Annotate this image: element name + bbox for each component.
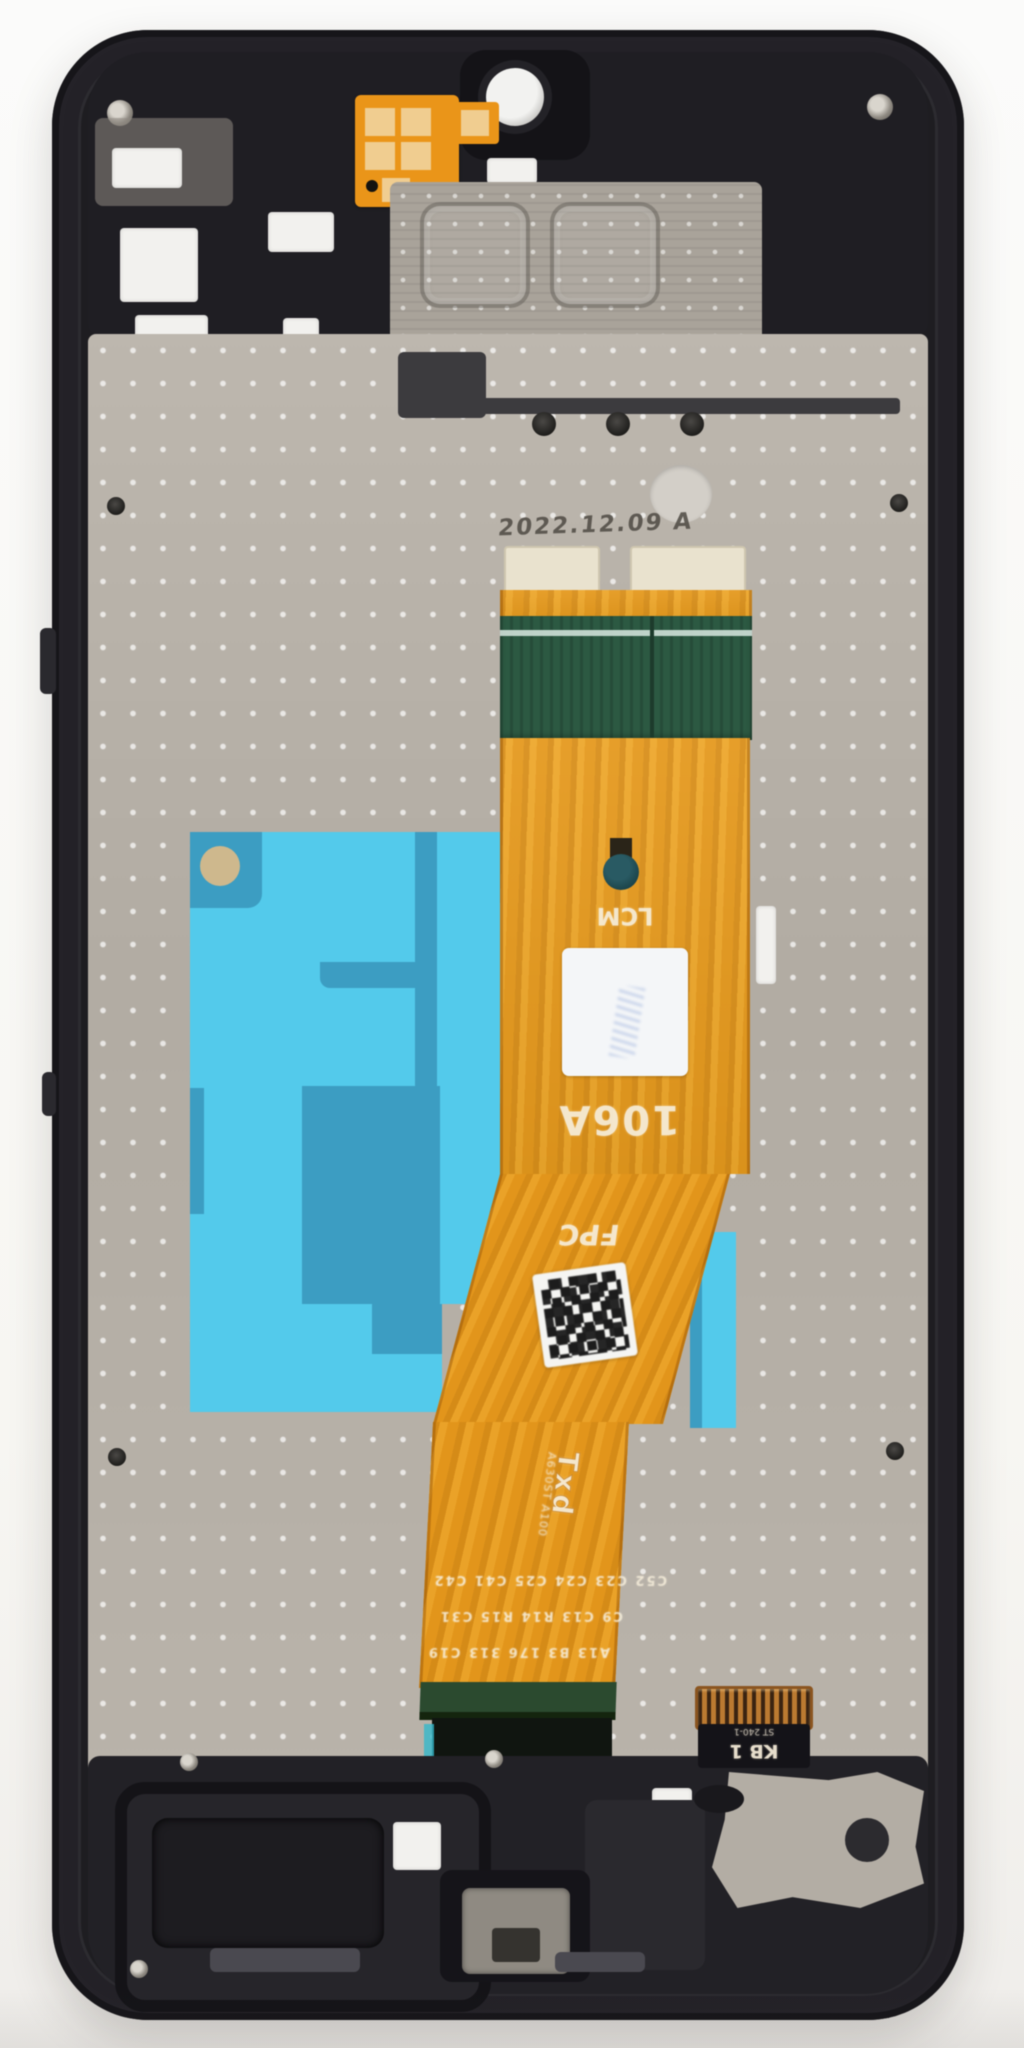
silkscreen-row-2: C9 C13 R14 R15 C31 xyxy=(438,1608,623,1623)
plate-rail xyxy=(460,398,900,414)
bottom-notch-2 xyxy=(555,1952,645,1972)
screw-top-right xyxy=(867,94,893,120)
silkscreen-row-1: C52 C23 C24 C25 C41 C42 xyxy=(432,1572,667,1587)
shield-pocket-right xyxy=(550,202,660,308)
adhesive-teal-blob xyxy=(302,1086,440,1304)
plate-screw-hole-1 xyxy=(107,497,125,515)
connector-label-plate: KB 1 ST 240-1 xyxy=(698,1724,810,1768)
kb-label: KB 1 xyxy=(698,1740,810,1762)
bottom-center-panel xyxy=(585,1800,705,1970)
label-ink-marks xyxy=(609,984,646,1059)
screw-bottom-2 xyxy=(485,1750,503,1768)
fpc-label: FPC xyxy=(552,1218,627,1251)
cutout-mid-left xyxy=(268,212,334,252)
plate-screw-hole-3 xyxy=(108,1448,126,1466)
model-label: 106A xyxy=(560,1096,680,1142)
adhesive-corner-ring xyxy=(200,846,240,886)
contact-pad-2 xyxy=(401,108,431,136)
side-key-bump xyxy=(40,628,56,694)
silkscreen-row-3: A13 B3 176 313 C19 xyxy=(427,1644,611,1659)
rail-hole-1 xyxy=(532,412,556,436)
kb-sublabel: ST 240-1 xyxy=(698,1726,810,1736)
flex-end-pcb xyxy=(419,1682,616,1720)
plate-screw-hole-2 xyxy=(890,494,908,512)
bottom-metal-hole xyxy=(845,1818,889,1862)
cutout-bottom-1 xyxy=(393,1822,441,1870)
flex-teardrop-hole xyxy=(603,854,639,890)
qr-code-label xyxy=(532,1262,638,1368)
bottom-notch-1 xyxy=(210,1948,360,1972)
cutout-left-large xyxy=(120,228,198,302)
contact-pad-1 xyxy=(365,108,395,136)
contact-pad-4 xyxy=(401,142,431,170)
product-photo: 2022.12.09 A C52 C23 C24 C25 C41 C42 C9 … xyxy=(0,0,1024,2048)
screw-bottom-1 xyxy=(180,1753,198,1771)
plate-screw-hole-4 xyxy=(886,1442,904,1460)
flex-ribbon-lower: C52 C23 C24 C25 C41 C42 C9 C13 R14 R15 C… xyxy=(419,1422,629,1688)
contact-pad-3 xyxy=(365,142,395,170)
adhesive-teal-arm xyxy=(320,962,420,988)
adhesive-teal-edge xyxy=(190,1088,204,1214)
white-label xyxy=(562,948,688,1076)
pcb-white-stripe xyxy=(500,630,752,636)
cutout-top-left xyxy=(112,148,182,188)
rail-hole-3 xyxy=(680,412,704,436)
adhesive-teal-step xyxy=(372,1304,442,1354)
floor-shadow xyxy=(0,1988,1024,2048)
bottom-dark-oval xyxy=(694,1785,744,1813)
speaker-inner xyxy=(152,1818,384,1948)
contact-pad-5 xyxy=(461,110,489,136)
screw-bottom-3 xyxy=(130,1960,148,1978)
pcb-seam-line xyxy=(650,616,654,740)
contact-pad-dot xyxy=(366,180,378,192)
cutout-below-camera xyxy=(487,158,537,184)
bottom-metal-patch xyxy=(712,1772,924,1908)
plate-slot-right xyxy=(756,906,776,984)
rail-hole-2 xyxy=(606,412,630,436)
phone-frame: 2022.12.09 A C52 C23 C24 C25 C41 C42 C9 … xyxy=(52,30,964,2020)
lcm-label: LCM xyxy=(585,902,665,930)
shield-pocket-left xyxy=(420,202,530,308)
side-key-bump-2 xyxy=(42,1072,56,1116)
charging-port-slot xyxy=(492,1928,540,1962)
